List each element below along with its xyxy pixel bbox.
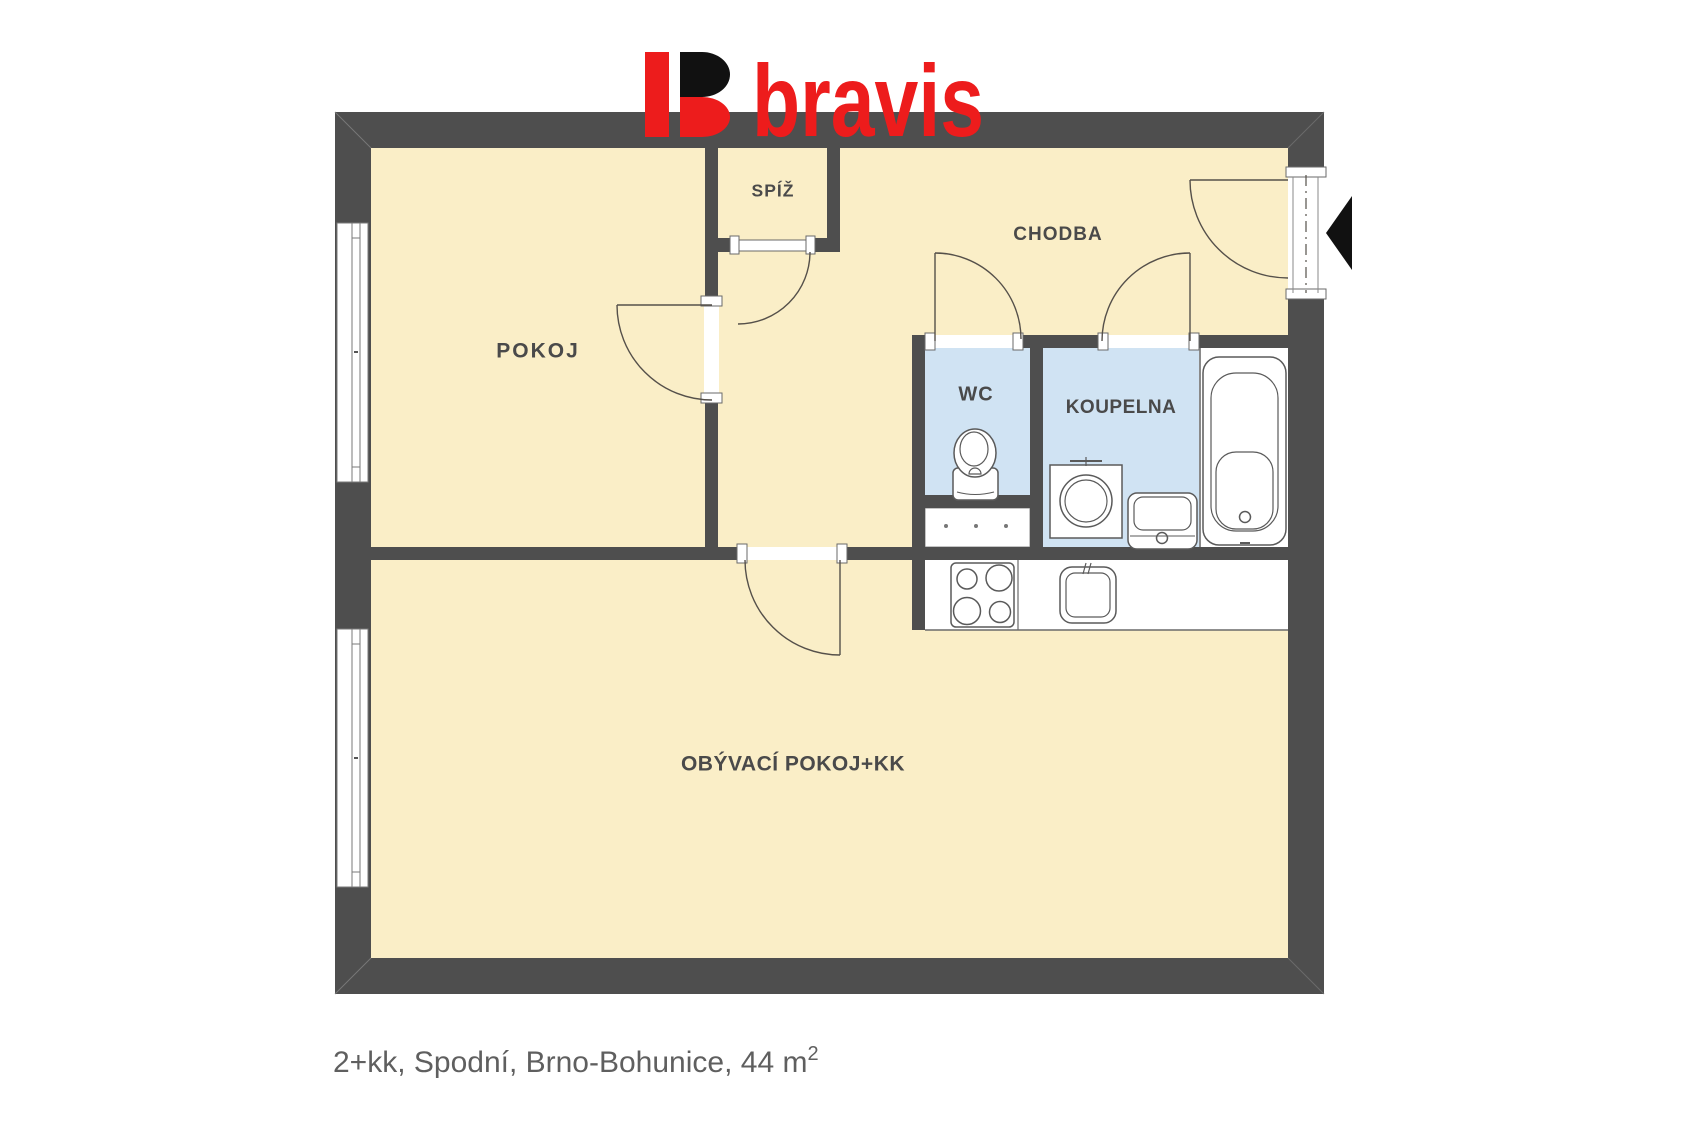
room-label-wc: WC (958, 383, 993, 405)
bathtub (1203, 357, 1286, 545)
floorplan-page: POKOJ SPÍŽ CHODBA WC KOUPELNA OBÝVACÍ PO… (0, 0, 1702, 1130)
room-label-obyvaci: OBÝVACÍ POKOJ+KK (681, 752, 905, 776)
floorplan-canvas: POKOJ SPÍŽ CHODBA WC KOUPELNA OBÝVACÍ PO… (0, 0, 1702, 1130)
room-label-koupelna: KOUPELNA (1066, 397, 1177, 418)
bathroom-sink (1128, 493, 1197, 549)
logo-wordmark: bravis (752, 44, 984, 158)
listing-caption: 2+kk, Spodní, Brno-Bohunice, 44 m2 (333, 1043, 819, 1079)
entrance-arrow-icon (1326, 196, 1352, 270)
vent-shaft (925, 508, 1030, 547)
kitchen-sink (1060, 563, 1116, 623)
logo-bar (645, 52, 669, 137)
caption-superscript: 2 (807, 1043, 818, 1065)
room-label-pokoj: POKOJ (496, 340, 580, 363)
cooktop (951, 563, 1014, 627)
caption-main: 2+kk, Spodní, Brno-Bohunice, 44 m (333, 1046, 807, 1079)
washing-machine (1050, 457, 1122, 538)
window-obyvaci (337, 629, 368, 887)
room-label-spiz: SPÍŽ (752, 180, 795, 201)
room-label-chodba: CHODBA (1013, 224, 1102, 245)
logo-b-top (680, 52, 730, 97)
window-pokoj (337, 223, 368, 482)
toilet (953, 429, 998, 500)
